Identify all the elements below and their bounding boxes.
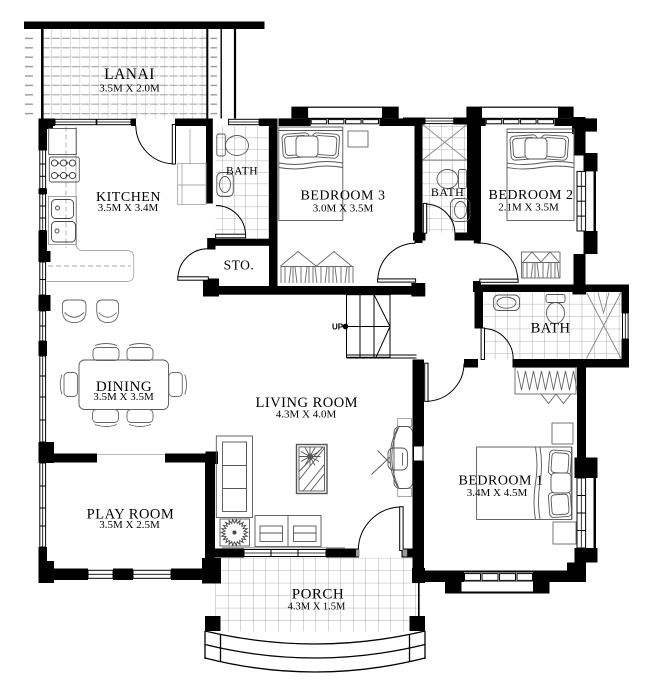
svg-text:2.1M X 3.5M: 2.1M X 3.5M bbox=[498, 202, 559, 214]
svg-text:3.5M X 3.4M: 3.5M X 3.4M bbox=[98, 202, 159, 214]
svg-text:BEDROOM 3: BEDROOM 3 bbox=[300, 189, 385, 204]
svg-text:BATH: BATH bbox=[531, 321, 571, 337]
svg-text:3.5M X 2.5M: 3.5M X 2.5M bbox=[99, 519, 160, 531]
svg-text:BATH: BATH bbox=[226, 166, 258, 178]
svg-text:3.0M X 3.5M: 3.0M X 3.5M bbox=[313, 203, 374, 215]
svg-text:STO.: STO. bbox=[224, 258, 255, 273]
svg-text:UP: UP bbox=[332, 322, 344, 331]
svg-text:BATH: BATH bbox=[431, 185, 464, 199]
svg-text:4.3M X 4.0M: 4.3M X 4.0M bbox=[276, 409, 337, 421]
svg-text:LANAI: LANAI bbox=[104, 66, 155, 83]
svg-text:4.3M X 1.5M: 4.3M X 1.5M bbox=[288, 602, 346, 613]
svg-text:3.5M X 2.0M: 3.5M X 2.0M bbox=[99, 83, 160, 95]
svg-text:3.4M X 4.5M: 3.4M X 4.5M bbox=[467, 487, 528, 499]
svg-text:3.5M X 3.5M: 3.5M X 3.5M bbox=[93, 391, 154, 403]
svg-text:PORCH: PORCH bbox=[292, 587, 345, 603]
